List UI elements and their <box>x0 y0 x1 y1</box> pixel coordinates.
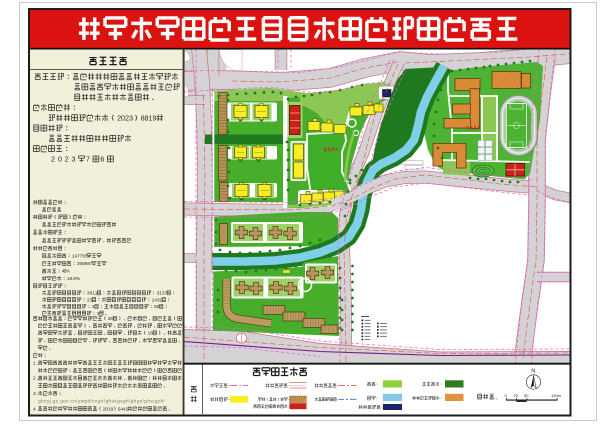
svg-text:100m: 100m <box>551 393 562 398</box>
svg-text:2019: 2019 <box>103 406 114 412</box>
svg-text:4: 4 <box>92 304 95 310</box>
svg-text:N: N <box>531 369 535 375</box>
svg-text:7: 7 <box>86 155 90 164</box>
svg-text:50: 50 <box>524 393 529 398</box>
svg-text:36: 36 <box>108 316 114 322</box>
svg-text:6: 6 <box>100 155 104 164</box>
svg-text:8819: 8819 <box>141 113 157 122</box>
svg-text:2: 2 <box>51 155 55 164</box>
svg-text:2: 2 <box>65 155 69 164</box>
svg-text:20: 20 <box>514 393 519 398</box>
svg-text:ghzyj.gz.gov.cn/ywpd/cxgh/ghsk: ghzyj.gz.gov.cn/ywpd/cxgh/ghskgsgh/ghgs/… <box>38 398 166 404</box>
svg-text:1432: 1432 <box>152 297 163 303</box>
svg-text:18: 18 <box>148 330 154 336</box>
svg-text:58: 58 <box>154 304 160 310</box>
svg-text:23: 23 <box>87 297 93 303</box>
svg-text:5442: 5442 <box>118 406 129 412</box>
svg-text:3.: 3. <box>33 391 38 397</box>
svg-text:0: 0 <box>58 155 62 164</box>
svg-text:45%: 45% <box>62 269 71 275</box>
svg-text:1.: 1. <box>33 360 38 366</box>
svg-text:3: 3 <box>71 155 75 164</box>
svg-text:19.8%: 19.8% <box>67 276 81 282</box>
svg-text:4.: 4. <box>33 406 38 412</box>
svg-text:2.: 2. <box>33 376 38 382</box>
svg-text:3811: 3811 <box>87 290 98 296</box>
svg-text:3137: 3137 <box>157 290 168 296</box>
svg-text:3: 3 <box>97 311 100 317</box>
svg-text:147755: 147755 <box>72 253 88 259</box>
svg-text:2023: 2023 <box>117 113 133 122</box>
svg-text:369987: 369987 <box>77 261 93 267</box>
